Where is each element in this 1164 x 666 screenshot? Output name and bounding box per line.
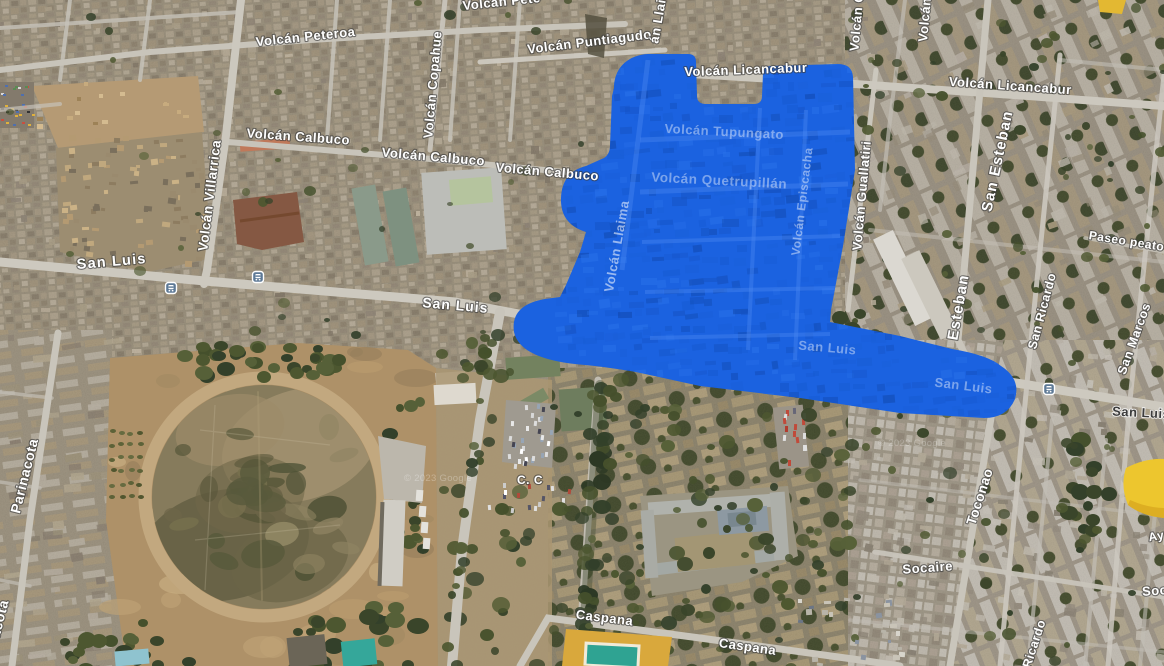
svg-text:© 2023 Google: © 2023 Google — [878, 438, 946, 449]
svg-text:Soc: Soc — [1142, 582, 1164, 599]
svg-text:© 2023 Google: © 2023 Google — [404, 473, 472, 484]
svg-text:C. C: C. C — [517, 473, 543, 487]
svg-text:San Luis: San Luis — [1112, 403, 1164, 421]
svg-text:Ay: Ay — [1147, 528, 1164, 545]
